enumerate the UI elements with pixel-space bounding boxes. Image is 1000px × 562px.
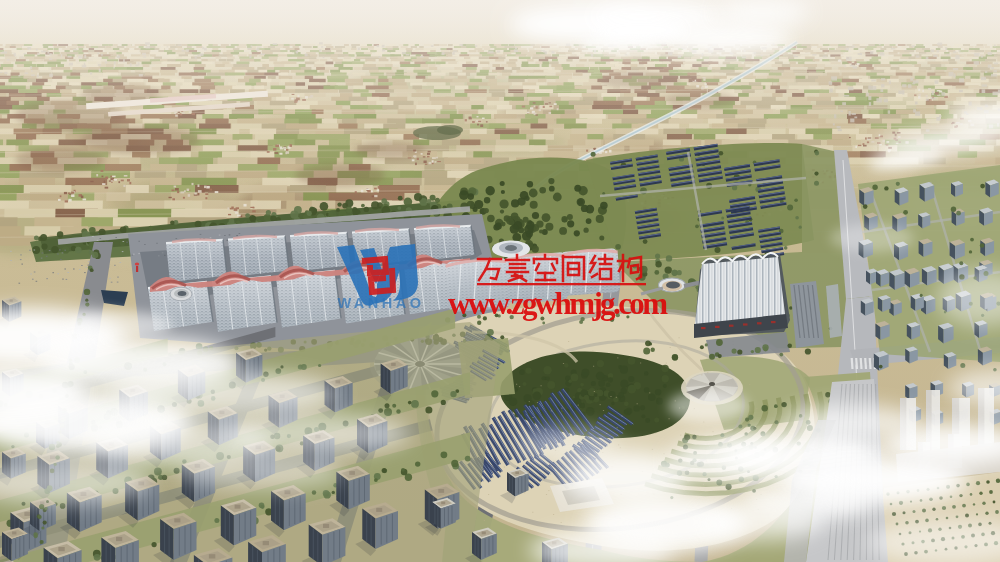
svg-text:WANHAO: WANHAO xyxy=(337,295,424,311)
svg-text:www.zgwhmjg.com: www.zgwhmjg.com xyxy=(448,286,668,321)
